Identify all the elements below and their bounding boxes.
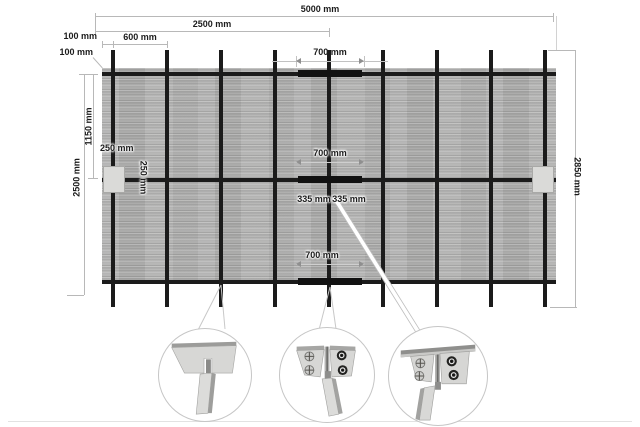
dim-tick <box>88 74 98 75</box>
dim-arrow <box>296 58 301 64</box>
dim-ext <box>556 16 557 50</box>
dim-tick <box>88 178 98 179</box>
dim-tick <box>364 56 365 67</box>
detail-circle-middle <box>279 327 375 423</box>
dim-label-600: 600 mm <box>110 32 170 43</box>
dim-arrow <box>296 261 301 267</box>
dim-line-700-bottom <box>296 264 364 265</box>
dim-label-700-top: 700 mm <box>300 47 360 58</box>
dim-tick <box>67 295 84 296</box>
dim-label-250-height: 250 mm <box>138 156 149 200</box>
dim-line-600 <box>102 44 167 45</box>
dim-tick <box>102 41 103 48</box>
detail-circle-right <box>388 326 488 426</box>
splice-bar-top <box>298 70 362 77</box>
dim-label-1150: 1150 mm <box>84 104 95 150</box>
dim-label-2500-top: 2500 mm <box>172 19 252 30</box>
dim-label-335-left: 335 mm <box>296 194 332 205</box>
dim-label-250-width: 250 mm <box>100 143 144 154</box>
rail-post-bracket-screws-front-icon <box>280 328 374 422</box>
rail-post-slot-rear-view-icon <box>159 329 251 421</box>
dim-line-5000 <box>95 16 553 17</box>
dim-label-100-top: 100 mm <box>55 31 97 42</box>
dim-arrow <box>359 58 364 64</box>
bracket-left <box>103 166 125 193</box>
dim-arrow <box>359 261 364 267</box>
dim-line-700-top <box>272 61 388 62</box>
bracket-right <box>532 166 554 193</box>
splice-bar-middle <box>298 176 362 183</box>
dim-label-335-right: 335 mm <box>331 194 367 205</box>
fence-panel-assembly-diagram: 5000 mm 2500 mm 100 mm 600 mm 100 mm 115… <box>0 0 640 427</box>
dim-label-2500-left: 2500 mm <box>72 155 83 201</box>
detail-circle-left <box>158 328 252 422</box>
post-3 <box>219 50 223 307</box>
dim-label-100-left: 100 mm <box>48 47 93 58</box>
dim-tick <box>550 307 577 308</box>
post-7 <box>435 50 439 307</box>
dim-line-700-middle <box>296 162 364 163</box>
splice-bar-bottom <box>298 278 362 285</box>
dim-label-700-bottom: 700 mm <box>292 250 352 261</box>
dim-arrow <box>359 159 364 165</box>
dim-tick <box>329 28 330 37</box>
dim-leader-100-left <box>93 57 103 68</box>
post-4 <box>273 50 277 307</box>
dim-tick <box>548 50 575 51</box>
rail-post-bracket-screws-angled-icon <box>389 327 487 425</box>
dim-tick <box>79 74 89 75</box>
post-2 <box>165 50 169 307</box>
dim-label-5000: 5000 mm <box>280 4 360 15</box>
post-8 <box>489 50 493 307</box>
dim-arrow <box>296 159 301 165</box>
post-6 <box>381 50 385 307</box>
dim-label-700-middle: 700 mm <box>300 148 360 159</box>
dim-tick <box>553 13 554 22</box>
dim-label-2850: 2850 mm <box>572 154 583 200</box>
